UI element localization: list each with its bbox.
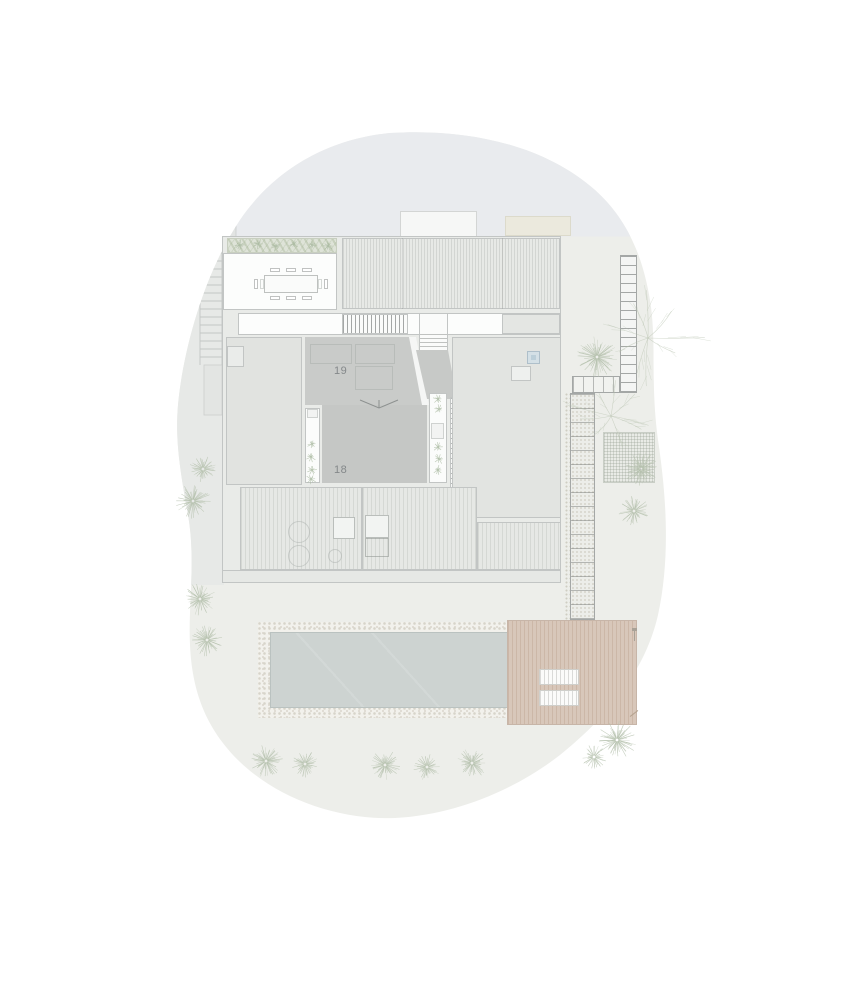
- dining-chair: [286, 268, 296, 272]
- planter-box: [431, 423, 444, 439]
- daybed-extension: [365, 538, 389, 557]
- room-19-label: 19: [334, 365, 347, 377]
- roof-hatch-east: [511, 366, 531, 381]
- room-18-label: 18: [334, 464, 347, 476]
- west-roof-hatch: [227, 346, 244, 367]
- landing-steps: [572, 376, 620, 393]
- daybed: [365, 515, 389, 538]
- dining-chair: [302, 268, 312, 272]
- planter-box: [307, 409, 318, 418]
- skylight-inner: [531, 355, 536, 360]
- site-plan-page: 19 18: [0, 0, 846, 1000]
- roof-planting-strip: [227, 238, 337, 253]
- lounge-chair: [288, 545, 310, 567]
- dining-chair: [286, 296, 296, 300]
- stone-step-path: [570, 393, 595, 620]
- building-south-edge: [222, 570, 561, 583]
- dining-table: [264, 275, 318, 293]
- swimming-pool: [270, 632, 508, 708]
- sun-lounger: [539, 690, 579, 706]
- roof-window: [355, 344, 395, 364]
- roof-terrace-dining: [223, 253, 337, 310]
- sun-lounger: [539, 669, 579, 685]
- hillside-stair: [620, 255, 637, 393]
- roof-window: [355, 366, 393, 390]
- skylight: [527, 351, 540, 364]
- lower-deck-east: [477, 522, 561, 570]
- dining-chair: [270, 296, 280, 300]
- upper-garden-patch: [505, 216, 571, 236]
- roof-window: [310, 344, 352, 364]
- dining-chair: [324, 279, 328, 289]
- slope-arrow-icon: [356, 397, 402, 415]
- dining-table-end: [260, 279, 264, 289]
- planting-bed: [603, 432, 655, 483]
- left-exterior-steps: [200, 253, 222, 365]
- lower-terrace-outline: [400, 211, 477, 237]
- left-retaining-wall: [204, 365, 222, 415]
- dining-chair: [254, 279, 258, 289]
- left-driveway: [170, 237, 224, 585]
- corridor-panel: [502, 314, 560, 334]
- planter-west: [305, 408, 320, 483]
- dining-chair: [302, 296, 312, 300]
- dining-table-end: [318, 279, 322, 289]
- side-table-round: [328, 549, 342, 563]
- dining-chair: [270, 268, 280, 272]
- lounge-chair: [288, 521, 310, 543]
- stairwell: [419, 313, 448, 352]
- upper-stair-run: [342, 314, 408, 334]
- shower-stem: [634, 631, 635, 641]
- upper-terrain-zone: [0, 0, 846, 237]
- deck-table: [333, 517, 355, 539]
- deck-seam: [502, 238, 503, 309]
- pool-timber-deck: [507, 620, 637, 725]
- upper-roof-deck: [342, 238, 560, 309]
- outdoor-shower-icon: [632, 628, 638, 642]
- deck-seam: [402, 238, 403, 309]
